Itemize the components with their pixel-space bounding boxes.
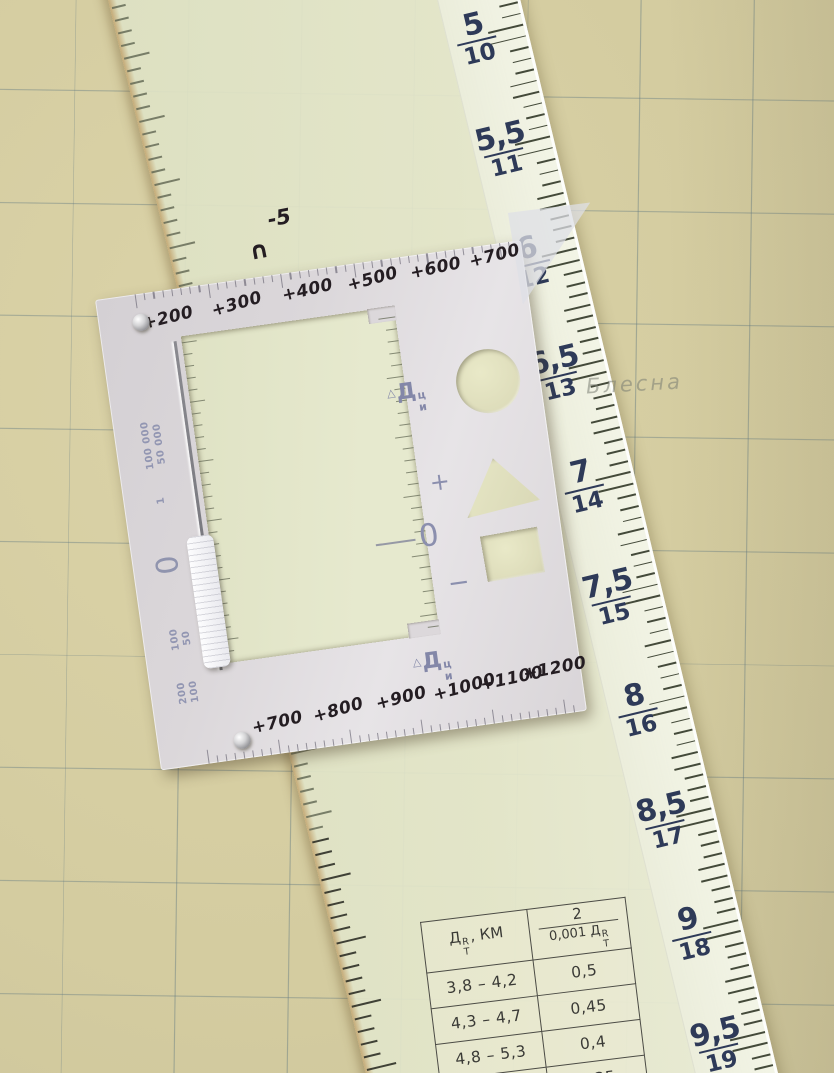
tick-mark <box>596 404 615 410</box>
tick-mark <box>623 516 642 522</box>
rotated-scale-label: 100 00050 000 <box>139 417 169 472</box>
scale-number-pair: 510 <box>442 5 510 73</box>
rotated-scale-label: 10050 <box>166 611 196 666</box>
delta-d-symbol-bottom: △Дци <box>411 646 454 686</box>
tick-mark <box>388 340 399 343</box>
tick-mark <box>317 269 319 276</box>
tick-mark <box>288 745 290 752</box>
tick-mark <box>564 303 591 311</box>
tick-mark <box>546 709 548 716</box>
tick-mark <box>701 841 720 847</box>
tick-mark <box>377 733 379 740</box>
tick-mark <box>671 718 690 724</box>
tick-mark <box>406 471 417 474</box>
tick-mark <box>502 13 521 19</box>
tick-mark <box>192 412 201 415</box>
tick-mark <box>359 735 361 742</box>
tick-mark <box>198 459 213 462</box>
tick-mark <box>243 752 245 759</box>
tick-mark <box>741 1009 760 1015</box>
tick-mark <box>510 46 529 52</box>
tick-mark <box>324 740 326 747</box>
tick-mark <box>306 743 308 750</box>
tick-mark <box>566 281 585 287</box>
tick-mark <box>368 734 370 741</box>
zero-symbol: 0 <box>417 517 442 555</box>
tick-mark <box>529 124 548 130</box>
tick-mark <box>171 289 173 296</box>
tick-mark <box>289 272 291 279</box>
tick-mark <box>217 283 219 290</box>
tick-mark <box>207 284 210 298</box>
tick-mark <box>542 180 561 186</box>
tick-mark <box>754 1065 773 1071</box>
tick-mark <box>395 435 412 439</box>
tick-mark <box>244 279 246 286</box>
tick-mark <box>162 290 164 297</box>
scale-number-pair: 714 <box>550 453 618 521</box>
tick-mark <box>609 460 628 466</box>
tick-mark <box>411 507 422 510</box>
tick-mark <box>226 281 228 288</box>
tick-mark <box>395 730 397 737</box>
handwritten-offset-label: +1200 <box>521 653 588 685</box>
tick-mark <box>225 754 227 761</box>
tick-mark <box>197 448 206 451</box>
tick-mark <box>404 459 415 462</box>
tick-mark <box>636 572 655 578</box>
window-notch-top <box>367 305 397 324</box>
tick-mark <box>403 447 414 450</box>
tick-mark <box>634 561 653 567</box>
tick-mark <box>430 725 432 732</box>
rotated-scale-label: 1 <box>152 474 171 527</box>
tick-mark <box>253 278 255 285</box>
tick-mark <box>387 376 404 380</box>
triangle-cutout <box>458 451 541 519</box>
circle-cutout <box>452 345 524 417</box>
tick-mark <box>308 270 310 277</box>
tick-mark <box>730 964 749 970</box>
conversion-table: ДRТ, КМ 2 0,001 ДRТ 3,8 – 4,20,54,3 – 4,… <box>420 897 649 1073</box>
scale-number-pair: 5,511 <box>469 117 537 185</box>
tick-mark <box>650 628 669 634</box>
tick-mark <box>182 340 197 343</box>
scale-number-pair: 8,517 <box>631 788 699 856</box>
tick-mark <box>234 753 236 760</box>
tick-mark <box>315 742 317 749</box>
tick-mark <box>195 436 204 439</box>
tick-mark <box>466 720 468 727</box>
tick-mark <box>647 650 674 658</box>
tick-mark <box>420 613 437 617</box>
tick-mark <box>703 852 722 858</box>
tick-mark <box>569 292 588 298</box>
tick-mark <box>235 280 237 287</box>
tick-mark <box>647 617 666 623</box>
scale-number-pair: 9,519 <box>684 1012 752 1073</box>
tick-mark <box>674 762 701 770</box>
tick-mark <box>412 554 429 558</box>
tick-mark <box>208 531 217 534</box>
tick-mark <box>567 315 594 323</box>
tick-mark <box>644 606 663 612</box>
tick-mark <box>362 262 364 269</box>
tick-mark <box>484 718 486 725</box>
tick-mark <box>153 292 155 299</box>
tick-mark <box>537 158 556 164</box>
tick-mark <box>183 353 192 356</box>
tick-mark <box>511 714 513 721</box>
tick-mark <box>752 1053 771 1059</box>
tick-mark <box>711 885 730 891</box>
tick-mark <box>523 102 542 108</box>
tick-mark <box>513 91 540 99</box>
tick-mark <box>188 389 197 392</box>
tick-mark <box>725 975 752 983</box>
tick-mark <box>297 744 299 751</box>
tick-mark <box>687 785 706 791</box>
tick-mark <box>725 941 744 947</box>
tick-mark <box>335 266 337 273</box>
tick-mark <box>423 590 434 593</box>
tick-mark <box>671 751 698 759</box>
tick-mark <box>617 494 636 500</box>
tick-mark <box>185 365 194 368</box>
tick-mark <box>200 472 209 475</box>
tick-mark <box>728 953 747 959</box>
tick-mark <box>620 539 647 547</box>
tick-mark <box>577 326 596 332</box>
tick-mark <box>252 750 254 757</box>
tick-mark <box>717 908 736 914</box>
tick-mark <box>202 484 211 487</box>
pencil-note: Блесна <box>585 369 683 398</box>
tick-mark <box>190 400 205 403</box>
tick-mark <box>448 723 450 730</box>
tick-mark <box>676 740 695 746</box>
tick-mark <box>591 415 618 423</box>
tick-mark <box>386 732 388 739</box>
tick-mark <box>660 673 679 679</box>
tick-mark <box>341 738 343 745</box>
tick-mark <box>502 715 504 722</box>
handwritten-offset-label: +900 <box>374 682 429 714</box>
delta-d-symbol-top: △Дци <box>385 377 428 417</box>
tick-mark <box>582 348 601 354</box>
handwritten-offset-label: +800 <box>311 693 366 726</box>
tick-mark <box>744 1020 763 1026</box>
tick-mark <box>203 496 212 499</box>
rivet-bottom <box>233 731 252 750</box>
tick-mark <box>135 294 138 308</box>
tick-mark <box>620 505 639 511</box>
tick-mark <box>270 748 272 755</box>
tick-mark <box>526 113 545 119</box>
minus-symbol: − <box>446 567 472 600</box>
handwritten-offset-label: +700 <box>250 707 305 738</box>
tick-mark <box>685 774 704 780</box>
tick-mark <box>537 710 539 717</box>
tick-mark <box>399 257 401 264</box>
tick-mark <box>262 276 264 283</box>
tick-mark <box>389 352 400 355</box>
tick-mark <box>299 271 301 278</box>
tick-mark <box>193 424 202 427</box>
tick-mark <box>386 328 397 331</box>
tick-mark <box>663 684 682 690</box>
tick-mark <box>424 602 435 605</box>
tick-mark <box>144 293 146 300</box>
handwritten-offset-label: +400 <box>280 275 335 306</box>
tick-mark <box>421 720 424 734</box>
tick-mark <box>261 749 263 756</box>
tick-mark <box>198 285 200 292</box>
tick-mark <box>539 169 558 175</box>
tick-mark <box>403 495 420 499</box>
scale-number-pair: 918 <box>657 900 725 968</box>
tick-mark <box>187 377 196 380</box>
tick-mark <box>738 997 757 1003</box>
tick-mark <box>499 1 518 7</box>
tick-mark <box>349 730 352 744</box>
tick-mark <box>408 256 410 263</box>
tick-mark <box>419 566 430 569</box>
tick-mark <box>728 986 755 994</box>
tick-mark <box>189 287 191 294</box>
tick-mark <box>413 728 415 735</box>
tick-mark <box>513 57 532 63</box>
tick-mark <box>205 507 214 510</box>
tick-mark <box>529 711 531 718</box>
tick-mark <box>564 270 583 276</box>
tick-mark <box>463 248 465 255</box>
tick-mark <box>391 364 402 367</box>
tick-mark <box>278 740 281 754</box>
tick-mark <box>510 80 537 88</box>
tick-mark <box>658 662 677 668</box>
tick-mark <box>207 750 210 764</box>
tick-mark <box>520 713 522 720</box>
tick-mark <box>344 265 346 272</box>
minus-five-label: -5 <box>265 204 292 232</box>
scale-number-pair: 7,515 <box>577 564 645 632</box>
scale-number-pair: 816 <box>604 676 672 744</box>
tick-mark <box>408 483 419 486</box>
tick-mark <box>573 705 575 712</box>
plus-symbol: + <box>428 467 452 498</box>
tick-mark <box>492 710 495 724</box>
tick-mark <box>714 897 733 903</box>
tick-mark <box>475 719 477 726</box>
tick-mark <box>404 729 406 736</box>
tick-mark <box>332 739 334 746</box>
tick-mark <box>604 438 623 444</box>
tick-mark <box>555 708 557 715</box>
tick-mark <box>515 68 534 74</box>
tick-mark <box>698 863 725 871</box>
tick-mark <box>698 830 717 836</box>
tick-mark <box>701 874 728 882</box>
tick-mark <box>371 261 373 268</box>
tick-mark <box>217 755 219 762</box>
tick-mark <box>271 275 273 282</box>
photo-canvas: 5105,5116126,5137147,5158168,5179189,519… <box>0 0 834 1073</box>
tick-mark <box>580 337 599 343</box>
tick-mark <box>618 527 645 535</box>
tick-mark <box>674 729 693 735</box>
slider-plate: +200+300+400+500+600+700 +700+800+900+10… <box>95 240 587 770</box>
window-notch-bottom <box>407 619 441 638</box>
square-cutout <box>480 527 545 582</box>
handwritten-offset-label: +300 <box>209 288 264 321</box>
tick-mark <box>421 578 432 581</box>
tick-mark <box>631 550 650 556</box>
tick-mark <box>690 796 709 802</box>
rotated-scale-label: 200100 <box>174 665 204 720</box>
tick-mark <box>439 724 441 731</box>
tick-mark <box>326 267 328 274</box>
tick-mark <box>645 639 672 647</box>
tick-mark <box>563 700 566 714</box>
tick-mark <box>607 449 626 455</box>
tick-mark <box>593 427 620 435</box>
tick-mark <box>537 192 564 200</box>
tick-mark <box>399 423 410 426</box>
plate-zero-label: 0 <box>149 553 186 577</box>
tick-mark <box>207 519 222 522</box>
tick-mark <box>457 722 459 729</box>
tick-mark <box>180 288 182 295</box>
